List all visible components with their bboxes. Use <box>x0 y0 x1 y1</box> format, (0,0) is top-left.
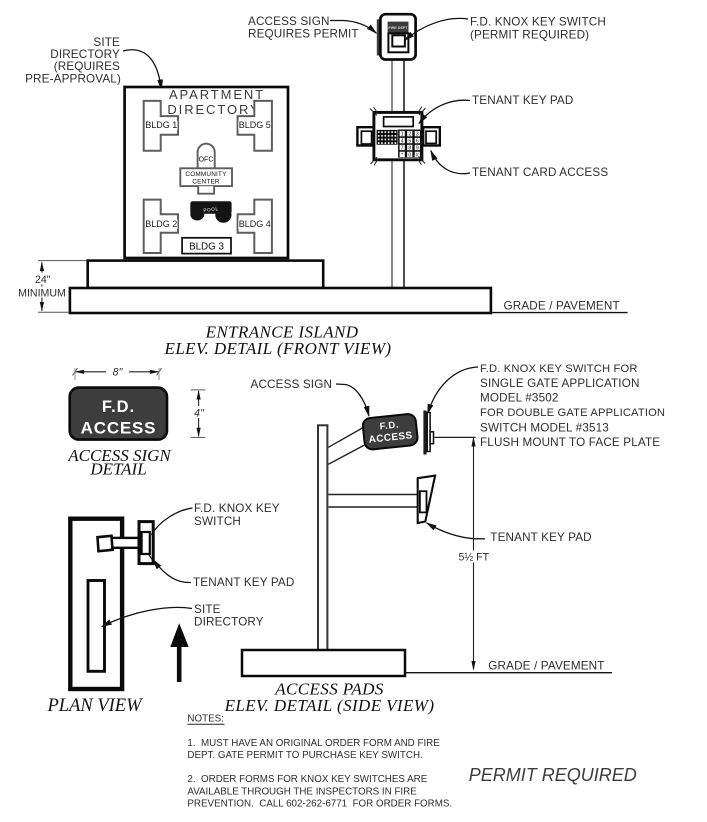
svg-text:APARTMENT: APARTMENT <box>169 87 265 102</box>
svg-text:PERMIT REQUIRED: PERMIT REQUIRED <box>469 765 637 785</box>
svg-text:ACCESS: ACCESS <box>81 419 157 438</box>
svg-text:(PERMIT REQUIRED): (PERMIT REQUIRED) <box>470 29 589 42</box>
svg-text:5½ FT: 5½ FT <box>459 552 490 564</box>
svg-text:F.D.: F.D. <box>102 398 135 416</box>
svg-text:*: * <box>401 152 403 158</box>
svg-text:DIRECTORY: DIRECTORY <box>167 102 260 117</box>
svg-text:PREVENTION. CALL 602-262-6771: PREVENTION. CALL 602-262-6771 FOR ORDER … <box>187 799 452 810</box>
svg-text:F.D. KNOX KEY SWITCH FOR: F.D. KNOX KEY SWITCH FOR <box>480 363 638 375</box>
svg-text:NOTES:: NOTES: <box>187 714 223 725</box>
svg-text:ACCESS SIGN: ACCESS SIGN <box>251 378 333 391</box>
svg-text:AVAILABLE THROUGH THE INSPECTO: AVAILABLE THROUGH THE INSPECTORS IN FIRE <box>187 786 417 797</box>
svg-text:CENTER: CENTER <box>192 179 220 186</box>
svg-text:8": 8" <box>113 367 124 379</box>
svg-text:GRADE / PAVEMENT: GRADE / PAVEMENT <box>504 300 620 313</box>
svg-text:4": 4" <box>194 407 205 419</box>
svg-text:SINGLE GATE APPLICATION: SINGLE GATE APPLICATION <box>480 377 640 390</box>
svg-text:PLAN VIEW: PLAN VIEW <box>46 696 143 716</box>
svg-text:3: 3 <box>416 132 419 138</box>
svg-text:F.D. KNOX KEY: F.D. KNOX KEY <box>194 502 280 515</box>
svg-text:FOR DOUBLE GATE APPLICATION: FOR DOUBLE GATE APPLICATION <box>480 407 665 419</box>
svg-text:2. ORDER FORMS FOR KNOX KEY S: 2. ORDER FORMS FOR KNOX KEY SWITCHES ARE <box>187 774 427 785</box>
svg-text:7: 7 <box>401 145 404 151</box>
svg-text:FLUSH MOUNT TO FACE PLATE: FLUSH MOUNT TO FACE PLATE <box>480 436 660 449</box>
svg-text:1: 1 <box>401 132 404 138</box>
svg-text:SWITCH MODEL #3513: SWITCH MODEL #3513 <box>480 421 609 434</box>
svg-text:SITE: SITE <box>194 603 221 616</box>
svg-text:F.D.: F.D. <box>379 420 400 433</box>
svg-text:(REQUIRES: (REQUIRES <box>54 60 120 73</box>
svg-text:2: 2 <box>408 132 411 138</box>
svg-text:9: 9 <box>416 145 419 151</box>
svg-text:5: 5 <box>408 138 411 144</box>
svg-text:8: 8 <box>408 145 411 151</box>
svg-text:MODEL #3502: MODEL #3502 <box>480 392 559 405</box>
svg-text:TENANT KEY PAD: TENANT KEY PAD <box>472 94 573 107</box>
svg-text:DIRECTORY: DIRECTORY <box>194 616 264 629</box>
svg-text:4: 4 <box>401 138 404 144</box>
svg-text:OFC: OFC <box>199 157 214 164</box>
svg-text:COMMUNITY: COMMUNITY <box>185 171 227 178</box>
svg-text:0: 0 <box>408 152 411 158</box>
svg-text:ELEV. DETAIL (SIDE VIEW): ELEV. DETAIL (SIDE VIEW) <box>224 696 435 715</box>
svg-text:BLDG 3: BLDG 3 <box>189 242 224 253</box>
svg-text:F.D. KNOX KEY SWITCH: F.D. KNOX KEY SWITCH <box>470 16 606 29</box>
svg-text:MINIMUM: MINIMUM <box>18 287 66 299</box>
svg-text:BLDG 1: BLDG 1 <box>145 120 177 130</box>
svg-text:BLDG 2: BLDG 2 <box>145 219 177 229</box>
svg-text:6: 6 <box>416 138 419 144</box>
svg-text:PRE-APPROVAL): PRE-APPROVAL) <box>25 73 121 86</box>
svg-text:TENANT KEY PAD: TENANT KEY PAD <box>490 531 591 544</box>
svg-text:TENANT CARD ACCESS: TENANT CARD ACCESS <box>472 166 608 179</box>
svg-text:DETAIL: DETAIL <box>89 460 146 479</box>
svg-text:#: # <box>416 152 419 158</box>
svg-text:GRADE / PAVEMENT: GRADE / PAVEMENT <box>488 659 604 672</box>
svg-text:DEPT. GATE PERMIT TO PURCHASE: DEPT. GATE PERMIT TO PURCHASE KEY SWITCH… <box>187 750 422 761</box>
svg-text:BLDG 5: BLDG 5 <box>239 120 271 130</box>
svg-text:24": 24" <box>35 274 51 286</box>
svg-text:BLDG 4: BLDG 4 <box>239 219 271 229</box>
svg-text:REQUIRES PERMIT: REQUIRES PERMIT <box>248 28 359 41</box>
svg-text:ELEV. DETAIL (FRONT VIEW): ELEV. DETAIL (FRONT VIEW) <box>164 339 392 358</box>
svg-text:SWITCH: SWITCH <box>194 515 241 528</box>
svg-text:ACCESS SIGN: ACCESS SIGN <box>248 15 330 28</box>
svg-text:TENANT KEY PAD: TENANT KEY PAD <box>193 576 294 589</box>
svg-text:1. MUST HAVE AN ORIGINAL ORDE: 1. MUST HAVE AN ORIGINAL ORDER FORM AND … <box>187 738 440 749</box>
svg-text:FIRE DEPT: FIRE DEPT <box>388 26 408 30</box>
